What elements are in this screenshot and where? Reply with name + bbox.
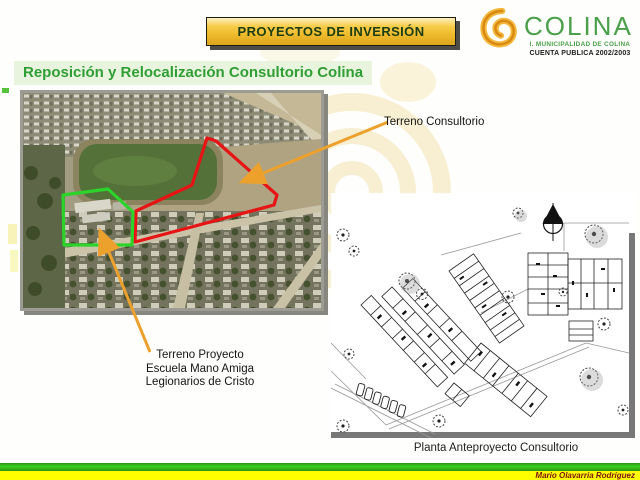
footer-author: Mario Olavarria Rodríguez: [535, 471, 640, 480]
municipalidad-subtitle: I. MUNICIPALIDAD DE COLINA: [524, 41, 636, 48]
aerial-photo-image: [23, 93, 321, 308]
colina-swirl-icon: [477, 5, 525, 53]
page-title: Reposición y Relocalización Consultorio …: [14, 61, 372, 85]
label-terreno-proyecto-line1: Terreno Proyecto: [116, 349, 284, 363]
banner-title: PROYECTOS DE INVERSIÓN: [238, 24, 425, 39]
label-terreno-proyecto-line3: Legionarios de Cristo: [116, 376, 284, 390]
footer-yellow-bar: Mario Olavarria Rodríguez: [0, 471, 640, 480]
plan-frame-bottom: [331, 432, 635, 438]
label-terreno-consultorio: Terreno Consultorio: [384, 116, 484, 128]
presentation-slide: PROYECTOS DE INVERSIÓN COLINA I. MUNICIP…: [0, 0, 640, 480]
banner-proyectos: PROYECTOS DE INVERSIÓN: [206, 17, 456, 46]
label-terreno-proyecto: Terreno Proyecto Escuela Mano Amiga Legi…: [116, 349, 284, 390]
footer-green-bar: [0, 463, 640, 471]
plan-caption: Planta Anteproyecto Consultorio: [356, 442, 636, 454]
aerial-photo: [20, 90, 324, 311]
site-plan-drawing: [331, 193, 636, 438]
colina-wordmark: COLINA: [524, 13, 640, 39]
cuenta-publica-tagline: CUENTA PUBLICA 2002/2003: [524, 50, 636, 57]
label-terreno-proyecto-line2: Escuela Mano Amiga: [116, 363, 284, 377]
plan-frame-right: [629, 233, 635, 438]
